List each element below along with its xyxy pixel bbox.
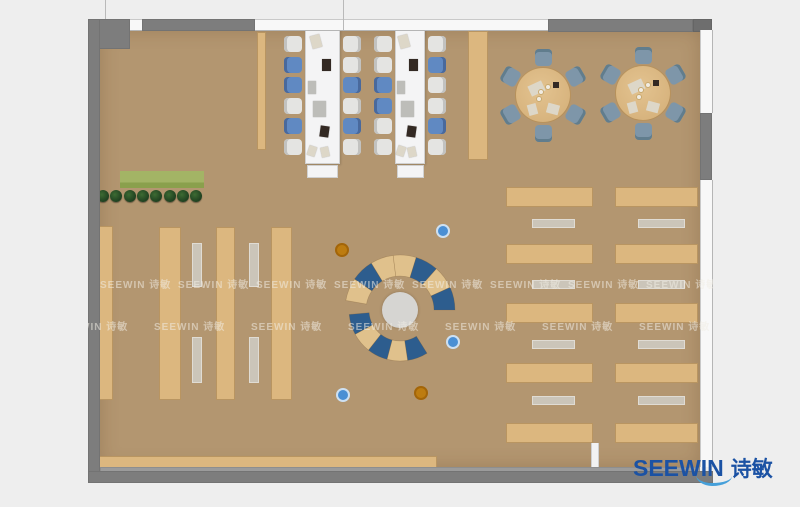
round-table-chair [635,47,652,64]
plant-bush [177,190,189,202]
task-chair [284,77,302,93]
aisle-bench [192,337,202,383]
task-chair [374,139,392,155]
task-chair [343,139,361,155]
task-chair [428,57,446,73]
window-band [700,180,713,467]
study-bench [532,219,575,228]
round-table [515,67,571,123]
window-band [255,19,548,31]
wall-segment [700,113,712,180]
workstation-table [305,29,340,164]
task-chair [284,57,302,73]
window-band [130,19,142,31]
aisle-bench [192,243,202,287]
collab-arc-seating [340,250,460,370]
brand-logo-swoosh-icon [696,475,732,486]
workstation-table [395,29,425,164]
task-chair [284,36,302,52]
desk-item [322,59,331,71]
arc-seating-segment [405,336,427,360]
task-chair [428,118,446,134]
desk-item [409,59,418,71]
study-desk [615,244,698,264]
study-desk [506,244,593,264]
study-bench [638,219,685,228]
plate [545,84,551,90]
study-bench [638,340,685,349]
plant-bush [124,190,136,202]
workstation-end-table [397,165,424,178]
brand-logo: SEEWIN诗敏 [633,453,773,483]
study-bench [532,280,575,289]
table-item [653,80,659,86]
glass-partition [591,443,599,469]
study-desk [506,423,593,443]
task-chair [343,77,361,93]
wall-segment [142,19,255,31]
study-desk [615,187,698,207]
plate [538,89,544,95]
desk-item [401,101,414,117]
study-desk [615,363,698,383]
planter-box [120,171,204,188]
task-chair [374,118,392,134]
task-chair [343,36,361,52]
task-chair [428,139,446,155]
plant-bush [137,190,149,202]
desk-item [308,81,316,94]
task-chair [343,118,361,134]
plate [638,87,644,93]
plate [536,96,542,102]
table-item [553,82,559,88]
study-bench [532,396,575,405]
task-chair [374,57,392,73]
wall-tick-line [343,0,344,30]
floor-plan: SEEWIN 诗敏SEEWIN 诗敏SEEWIN 诗敏SEEWIN 诗敏SEEW… [0,0,800,507]
study-desk [506,363,593,383]
pouf-blue [446,335,460,349]
task-chair [343,57,361,73]
round-table-chair [535,125,552,142]
desk-item [319,125,329,137]
task-chair [284,118,302,134]
window-band [700,30,713,113]
shelf-column [216,227,235,400]
wall-tick-line [105,0,106,19]
task-chair [428,77,446,93]
study-bench [638,396,685,405]
study-desk [615,423,698,443]
desk-item [397,81,405,94]
study-desk [506,187,593,207]
wall-segment [548,19,693,32]
task-chair [374,98,392,114]
study-bench [638,280,685,289]
round-table [615,65,671,121]
task-chair [428,98,446,114]
aisle-bench [249,337,259,383]
wall-segment [88,19,100,483]
desk-item [406,125,416,137]
pouf-orange [335,243,349,257]
brand-logo-text-cn: 诗敏 [731,458,773,481]
round-table-chair [535,49,552,66]
plate [645,82,651,88]
task-chair [374,36,392,52]
plant-bush [164,190,176,202]
task-chair [374,77,392,93]
plate [636,94,642,100]
study-desk [615,303,698,323]
task-chair [428,36,446,52]
pouf-blue [436,224,450,238]
side-table-strip [468,31,488,160]
study-desk [506,303,593,323]
round-table-chair [635,123,652,140]
wall-segment [88,471,713,483]
task-chair [284,98,302,114]
pouf-orange [414,386,428,400]
task-chair [343,98,361,114]
task-chair [284,139,302,155]
desk-item [313,101,326,117]
aisle-bench [249,243,259,287]
study-bench [532,340,575,349]
shelf-column [159,227,181,400]
pouf-blue [336,388,350,402]
plant-bush [190,190,202,202]
side-table-strip [257,32,266,150]
workstation-end-table [307,165,338,178]
shelf-column [271,227,292,400]
